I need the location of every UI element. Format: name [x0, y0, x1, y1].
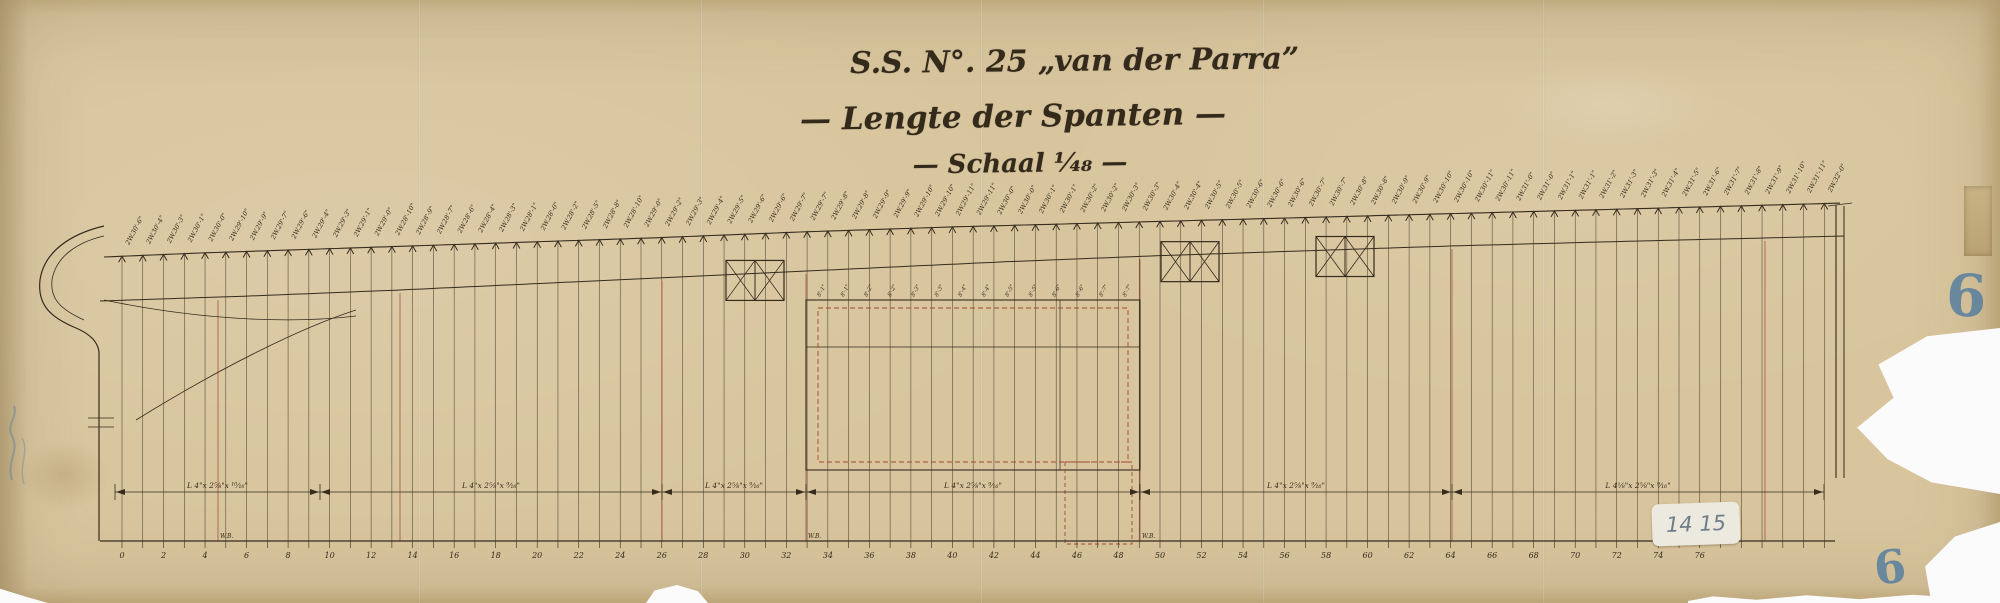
frame-length-label: 2W.31'-4": [1659, 167, 1681, 199]
frame-length-label: 2W.30'-2": [1099, 182, 1121, 214]
station-number: 54: [1238, 551, 1248, 560]
frame-length-label: 2W.30'-4": [1182, 180, 1204, 212]
frame-length-label: 2W.31'-9": [1763, 164, 1785, 196]
frame-length-label: 2W.30'-0": [995, 185, 1017, 217]
frame-length-label: 2W.30'-5": [1224, 178, 1246, 210]
station-number: 46: [1071, 551, 1082, 560]
station-number: 42: [988, 551, 999, 560]
frame-length-label: 2W.30'-1": [1057, 183, 1079, 215]
tween-deck-label: 8'-4": [957, 284, 968, 298]
frame-length-label: 2W.29'-7": [269, 209, 291, 241]
frame-length-label: 2W.30'-6": [123, 215, 145, 247]
frame-length-label: 2W.29'-8": [829, 190, 851, 222]
tween-deck-label: 8'-7": [1122, 284, 1133, 298]
station-scale: 0246810121416182022242628303234363840424…: [100, 533, 1835, 560]
frame-length-label: 2W.30'-4": [1161, 180, 1183, 212]
frame-length-label: 2W.28'-0": [538, 200, 560, 232]
drawing-title: S.S. N°. 25 „van der Parra”: [850, 42, 1250, 81]
station-number: 8: [286, 551, 291, 560]
frame-length-label: 2W.29'-6": [746, 193, 768, 225]
frame-length-label: 2W.31'-6": [1701, 166, 1723, 198]
tween-deck-label: 8'-3": [934, 284, 945, 298]
frame-length-label: 2W.30'-8": [1348, 175, 1370, 207]
frame-length-label: 2W.30'-5": [1203, 179, 1225, 211]
tween-deck-label: 8'-2": [863, 284, 874, 298]
frame-length-label: 2W.28'-6": [455, 203, 477, 235]
frame-length-label: 2W.29'-9": [248, 210, 270, 242]
station-number: 32: [781, 551, 791, 560]
frame-length-label: 2W.30'-3": [1120, 181, 1142, 213]
station-number: 38: [906, 551, 916, 560]
dimension-label: L 4"x 2⅝"x ⁹⁄₁₆": [461, 481, 520, 490]
bow-stem: [1828, 203, 1852, 478]
frame-length-label: 2W.29'-4": [705, 195, 727, 227]
dimension-label: L 4"x 2⅝"x ⁹⁄₁₆": [943, 481, 1002, 490]
blue-stamp-mark: [10, 406, 25, 484]
tween-deck-label: 8'-4": [981, 284, 992, 298]
frame-length-label: 2W.30'-1": [186, 212, 208, 244]
station-number: 44: [1029, 551, 1040, 560]
frame-length-label: 2W.30'-8": [1369, 175, 1391, 207]
frame-length-label: 2W.29'-0": [372, 206, 394, 238]
frame-length-label: 2W.29'-3": [331, 207, 353, 239]
frame-length-label: 2W.29'-6": [289, 209, 311, 241]
scanned-ship-drawing: 2W.30'-6"2W.30'-4"2W.30'-3"2W.30'-1"2W.3…: [0, 0, 2000, 603]
tween-deck-label: 8'-6": [1075, 284, 1086, 298]
tween-deck-label: 8'-6": [1051, 284, 1062, 298]
frame-length-label: 2W.31'-8": [1743, 165, 1765, 197]
station-number: 14: [408, 551, 418, 560]
frame-length-label: 2W.30'-9": [1410, 173, 1432, 205]
station-number: 4: [201, 551, 207, 560]
frame-length-label: 2W.31'-1": [1576, 169, 1598, 201]
frame-length-label: 2W.29'-1": [352, 207, 374, 239]
frame-length-label: 2W.31'-3": [1639, 167, 1661, 199]
frame-lines: [119, 204, 1828, 541]
station-number: 50: [1155, 551, 1165, 560]
frame-length-label: 2W.31'-3": [1618, 168, 1640, 200]
frame-length-label: 2W.29'-8": [850, 189, 872, 221]
frame-length-label: 2W.29'-4": [310, 208, 332, 240]
frame-length-label: 2W.30'-1": [1037, 183, 1059, 215]
wb-label: W.B.: [808, 533, 821, 540]
tween-deck-label: 8'-7": [1098, 284, 1109, 298]
station-number: 2: [160, 551, 166, 560]
frame-length-label: 2W.28'-4": [476, 203, 498, 235]
frame-length-label: 2W.29'-3": [684, 195, 706, 227]
station-number: 62: [1404, 551, 1414, 560]
dimension-label: L 4"x 2⅝"x ⁹⁄₁₆": [704, 481, 763, 490]
blue-pencil-number: 6: [1871, 538, 1908, 595]
dimension-label: L 4⅛"x 2⅝"x ⁹⁄₁₆": [1604, 481, 1670, 490]
station-number: 18: [491, 551, 501, 560]
station-number: 6: [244, 551, 249, 560]
frame-length-label: 2W.29'-7": [788, 191, 810, 223]
frame-length-label: 2W.28'-3": [497, 202, 519, 234]
station-number: 58: [1321, 551, 1331, 560]
frame-length-label: 2W.29'-2": [663, 196, 685, 228]
frame-length-label: 2W.30'-3": [165, 213, 187, 245]
drawing-scale-note: — Schaal ¹⁄₄₈ —: [825, 146, 1215, 181]
frame-length-label: 2W.30'-9": [1390, 174, 1412, 206]
station-number: 26: [656, 551, 667, 560]
frame-length-label: 2W.28'-7": [435, 204, 457, 236]
frame-length-label: 2W.30'-0": [1016, 184, 1038, 216]
tween-deck-label: 8'-1": [816, 284, 827, 298]
station-number: 56: [1279, 551, 1289, 560]
frame-length-label: 2W.31'-5": [1680, 166, 1702, 198]
frame-length-label: 2W.31'-1": [1556, 170, 1578, 202]
station-number: 10: [325, 551, 335, 560]
frame-length-label: 2W.29'-6": [767, 192, 789, 224]
station-number: 28: [697, 551, 708, 560]
tween-deck-label: 8'-5": [1004, 284, 1015, 298]
frame-length-label: 2W.30'-4": [144, 214, 166, 246]
dimension-label: L 4"x 2⅝"x ¹⁰⁄₁₆": [186, 481, 248, 490]
frame-length-label: 2W.30'-2": [1078, 182, 1100, 214]
frame-length-label: 2W.28'-1": [518, 201, 540, 233]
bulkhead-lines: [218, 241, 1765, 541]
station-number: 40: [946, 551, 957, 560]
tween-deck-label: 8'-2": [887, 284, 898, 298]
frame-length-label: 2W.30'-3": [1140, 181, 1162, 213]
station-number: 30: [740, 551, 750, 560]
station-number: 70: [1570, 551, 1580, 560]
tween-deck-label: 8'-5": [1028, 284, 1039, 298]
frame-length-label: 2W.29'-9": [871, 188, 893, 220]
frame-length-label: 2W.30'-6": [1244, 178, 1266, 210]
station-number: 20: [531, 551, 542, 560]
frame-length-label: 2W.28'-8": [601, 198, 623, 230]
tween-deck-label: 8'-1": [840, 284, 851, 298]
station-number: 64: [1446, 551, 1456, 560]
frame-length-label: 2W.29'-9": [891, 188, 913, 220]
dimension-label: L 4"x 2⅝"x ⁹⁄₁₆": [1266, 481, 1325, 490]
station-number: 68: [1529, 551, 1539, 560]
station-number: 34: [823, 551, 833, 560]
station-number: 12: [366, 551, 376, 560]
frame-length-label: 2W.29'-0": [642, 197, 664, 229]
station-number: 52: [1196, 551, 1206, 560]
tween-deck-label: 8'-3": [910, 284, 921, 298]
station-number: 66: [1487, 551, 1497, 560]
station-number: 48: [1112, 551, 1123, 560]
tape-repair: [1964, 186, 1992, 256]
frame-length-label: 2W.32'-0": [1826, 162, 1848, 194]
frame-length-label: 2W.29'-7": [808, 190, 830, 222]
frame-length-label: 2W.30'-6": [1286, 177, 1308, 209]
wb-label: W.B.: [1142, 533, 1155, 540]
frame-length-label: 2W.30'-6": [1265, 177, 1287, 209]
station-number: 22: [573, 551, 584, 560]
station-number: 16: [449, 551, 459, 560]
station-number: 72: [1612, 551, 1622, 560]
frame-length-label: 2W.28'-9": [414, 205, 436, 237]
drawing-subtitle: — Lengte der Spanten —: [800, 96, 1210, 138]
frame-length-label: 2W.29'-5": [725, 194, 747, 226]
frame-length-label: 2W.28'-2": [559, 200, 581, 232]
station-number: 36: [864, 551, 874, 560]
station-number: 24: [614, 551, 625, 560]
frame-length-label: 2W.31'-2": [1597, 168, 1619, 200]
wb-label: W.B.: [220, 533, 233, 540]
station-number: 60: [1363, 551, 1373, 560]
frame-length-label: 2W.31'-7": [1722, 165, 1744, 197]
frame-length-label: 2W.31'-0": [1535, 170, 1557, 202]
station-number: 74: [1653, 551, 1663, 560]
frame-length-label: 2W.30'-7": [1327, 176, 1349, 208]
frame-length-label: 2W.28'-5": [580, 199, 602, 231]
station-number: 76: [1695, 551, 1705, 560]
station-number: 0: [119, 551, 124, 560]
tween-deck-labels: 8'-1"8'-1"8'-2"8'-2"8'-3"8'-3"8'-4"8'-4"…: [816, 284, 1133, 298]
archive-sticker: 14 15: [1651, 501, 1740, 546]
frame-length-label: 2W.30'-0": [206, 212, 228, 244]
frame-length-label: 2W.31'-0": [1514, 171, 1536, 203]
blue-pencil-number: 6: [1945, 261, 1988, 330]
frame-length-label: 2W.30'-7": [1307, 176, 1329, 208]
stern-profile: [40, 226, 356, 541]
